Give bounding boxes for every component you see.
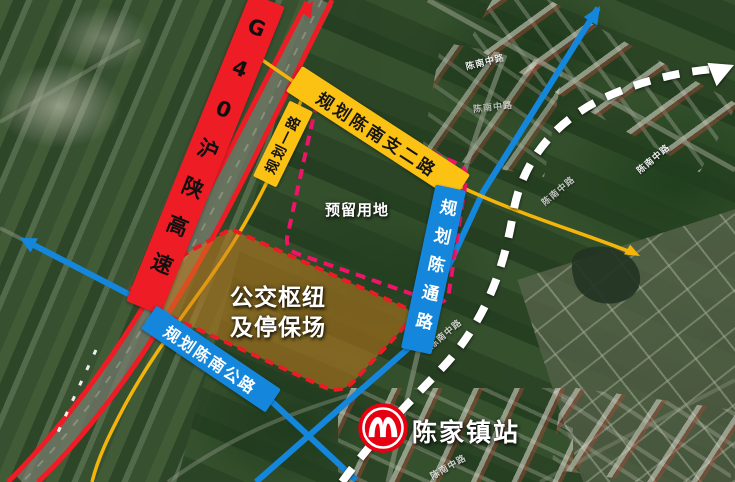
pond <box>572 247 640 304</box>
bus-hub-label-line2: 及停保场 <box>230 314 326 344</box>
bus-hub-label: 公交枢纽 及停保场 <box>230 284 326 344</box>
reserved-land-label: 预留用地 <box>325 199 389 220</box>
bus-hub-label-line1: 公交枢纽 <box>230 284 326 314</box>
white-dashed-arrow <box>707 63 734 86</box>
satellite-planning-map: 陈南中路 陈南中路 陈南中路 陈南中路 陈南中路 陈南中路 <box>0 0 735 482</box>
metro-station-label: 陈家镇站 <box>412 413 520 449</box>
shanghai-metro-logo <box>357 402 409 454</box>
